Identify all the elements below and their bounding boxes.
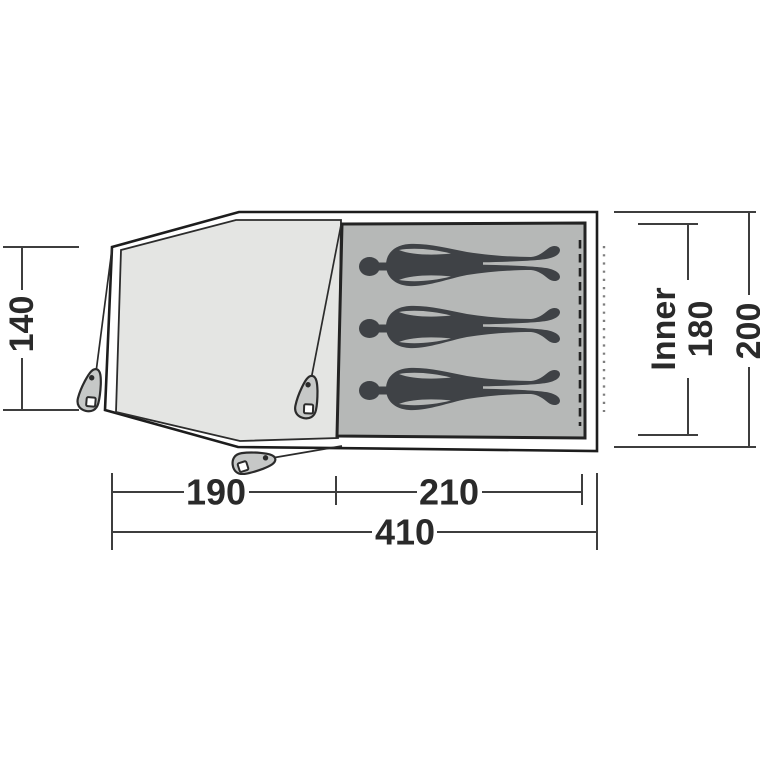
tent-floorplan-canvas: 140 Inner 180 200 190 210 410 xyxy=(0,0,760,760)
total-width-label: 410 xyxy=(375,512,435,553)
tent-floorplan-diagram: 140 Inner 180 200 190 210 410 xyxy=(0,0,760,760)
inner-width-name-label: Inner xyxy=(645,287,683,370)
porch-width-label: 190 xyxy=(186,472,246,513)
total-depth-label: 200 xyxy=(730,303,760,360)
dimension-porch-depth: 140 xyxy=(3,247,79,410)
dimension-bottom-widths: 190 210 410 xyxy=(112,472,597,553)
porch-depth-label: 140 xyxy=(3,296,41,353)
dimension-inner-width: Inner 180 xyxy=(638,224,720,435)
tent-peg-icon xyxy=(75,367,106,414)
inner-length-label: 210 xyxy=(419,472,479,513)
inner-width-value-label: 180 xyxy=(682,301,720,358)
